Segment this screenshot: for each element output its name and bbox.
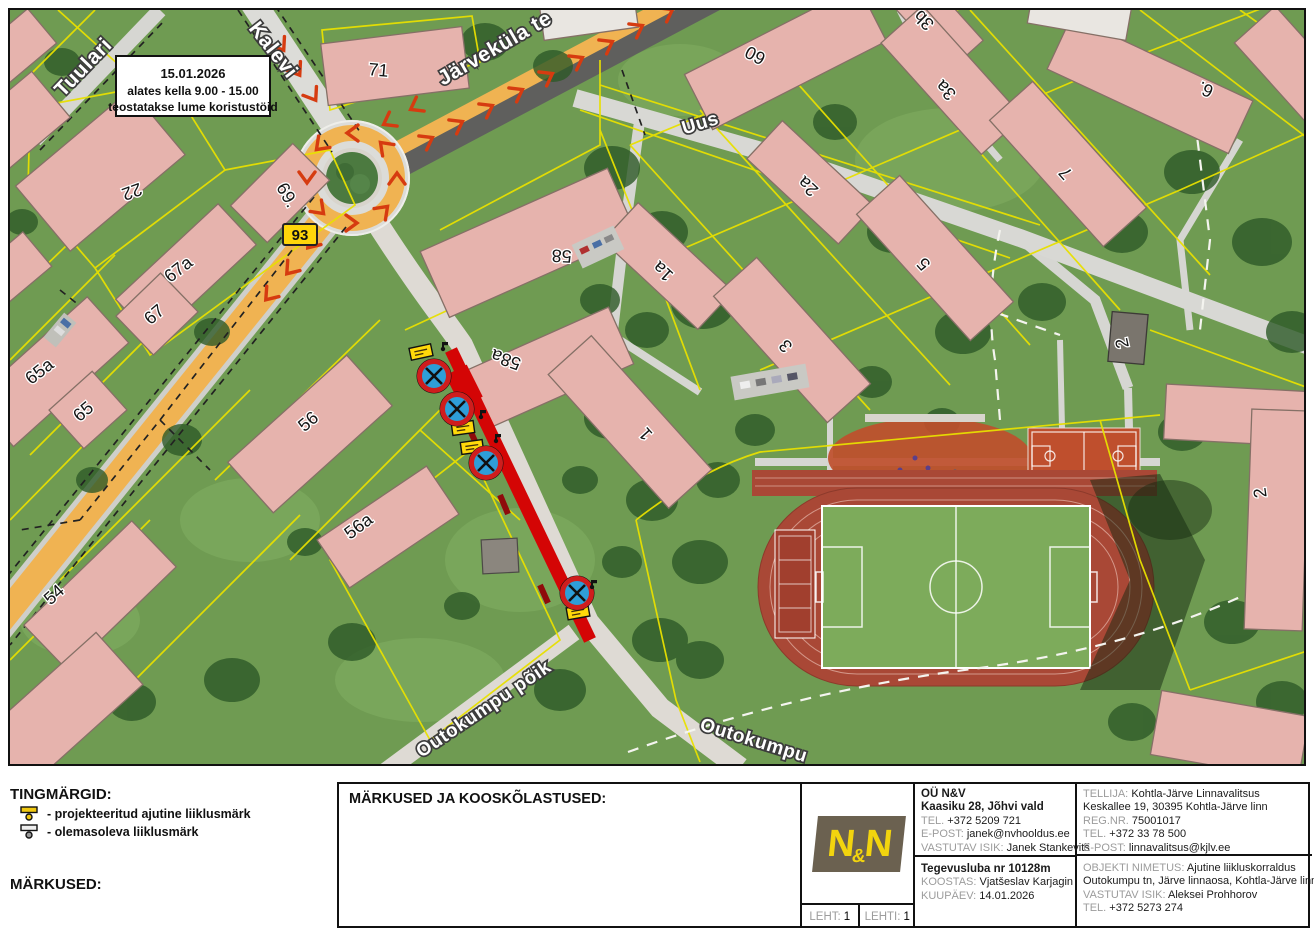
tellija-label: TELLIJA: xyxy=(1083,788,1128,800)
notes-approvals-header: MÄRKUSED JA KOOSKÕLASTUSED: xyxy=(349,791,606,807)
client-responsible-label: VASTUTAV ISIK: xyxy=(1083,889,1166,901)
legend-item-label: - olemasoleva liiklusmärk xyxy=(47,825,198,839)
company-responsible-label: VASTUTAV ISIK: xyxy=(921,842,1004,854)
client-tel-label: TEL. xyxy=(1083,828,1106,840)
company-logo: N & N xyxy=(812,816,906,872)
regnr-value: 75001017 xyxy=(1132,815,1181,827)
object-name: Ajutine liikluskorraldus xyxy=(1187,862,1296,874)
no-stopping-sign-icon xyxy=(469,446,503,480)
notice-text: teostatakse lume koristustöid xyxy=(108,100,277,114)
road-number-badge: 93 xyxy=(283,224,317,245)
title-block-panel: TINGMÄRGID: - projekteeritud ajutine lii… xyxy=(0,770,1314,933)
no-stopping-sign-icon xyxy=(440,392,474,426)
title-block-table: MÄRKUSED JA KOOSKÕLASTUSED: N & N LEHT: … xyxy=(337,782,1310,928)
roadwork-notice-box: 15.01.2026 alates kella 9.00 - 15.00 teo… xyxy=(108,56,277,116)
client-email: linnavalitsus@kjlv.ee xyxy=(1129,842,1230,854)
koostas-label: KOOSTAS: xyxy=(921,876,976,888)
company-cell: OÜ N&V Kaasiku 28, Jõhvi vald TEL. +372 … xyxy=(915,784,1077,926)
company-tel: +372 5209 721 xyxy=(947,815,1021,827)
company-license-block: Tegevusluba nr 10128m KOOSTAS: Vjatšesla… xyxy=(915,859,1075,926)
traffic-plan-page: 71 22 69. 67a 67 65a 65 58 58a 56 56a 54… xyxy=(0,0,1314,933)
sheet-count-cell: LEHTI: 1 xyxy=(860,905,916,928)
client-email-label: E-POST: xyxy=(1083,842,1126,854)
kuupaev-value: 14.01.2026 xyxy=(979,890,1034,902)
client-contact-block: TELLIJA: Kohtla-Järve Linnavalitsus Kesk… xyxy=(1077,784,1312,856)
legend-item-existing: - olemasoleva liiklusmärk xyxy=(20,824,330,839)
notice-time: alates kella 9.00 - 15.00 xyxy=(127,84,259,98)
regnr-label: REG.NR. xyxy=(1083,815,1129,827)
lehti-label: LEHTI: xyxy=(865,911,901,923)
object-label: OBJEKTI NIMETUS: xyxy=(1083,862,1184,874)
kuupaev-label: KUUPÄEV: xyxy=(921,890,976,902)
koostas-value: Vjatšeslav Karjagin xyxy=(979,876,1073,888)
legend-title: TINGMÄRGID: xyxy=(10,786,330,803)
aerial-map: 71 22 69. 67a 67 65a 65 58 58a 56 56a 54… xyxy=(8,8,1306,766)
object-block: OBJEKTI NIMETUS: Ajutine liikluskorraldu… xyxy=(1077,858,1312,926)
no-stopping-sign-icon xyxy=(417,359,451,393)
leht-value: 1 xyxy=(844,911,850,923)
company-address: Kaasiku 28, Jõhvi vald xyxy=(921,801,1069,814)
notice-date: 15.01.2026 xyxy=(160,66,225,81)
no-stopping-sign-icon xyxy=(560,576,594,610)
client-responsible: Aleksei Prohhorov xyxy=(1168,889,1257,901)
client-cell: TELLIJA: Kohtla-Järve Linnavalitsus Kesk… xyxy=(1077,784,1312,926)
sheet-number-cell: LEHT: 1 xyxy=(802,905,860,928)
tellija-value: Kohtla-Järve Linnavalitsus xyxy=(1131,788,1259,800)
company-tel-label: TEL. xyxy=(921,815,944,827)
markused-title: MÄRKUSED: xyxy=(10,876,102,893)
building-number: 71 xyxy=(368,59,390,81)
logo-cell: N & N LEHT: 1 LEHTI: 1 xyxy=(802,784,915,926)
client-tel: +372 33 78 500 xyxy=(1109,828,1186,840)
planned-temporary-sign-icon xyxy=(20,806,40,821)
lehti-value: 1 xyxy=(903,911,909,923)
legend-item-label: - projekteeritud ajutine liiklusmärk xyxy=(47,807,251,821)
logo-letter: N xyxy=(862,825,891,863)
company-email: janek@nvhooldus.ee xyxy=(967,828,1070,840)
client-tel2-label: TEL. xyxy=(1083,902,1106,914)
building-number: 58 xyxy=(551,245,572,266)
existing-sign-icon xyxy=(20,824,40,839)
legend-item-planned: - projekteeritud ajutine liiklusmärk xyxy=(20,806,330,821)
company-license: Tegevusluba nr 10128m xyxy=(921,863,1069,876)
notes-approvals-cell: MÄRKUSED JA KOOSKÕLASTUSED: xyxy=(339,784,802,926)
road-number: 93 xyxy=(292,227,309,244)
company-email-label: E-POST: xyxy=(921,828,964,840)
legend: TINGMÄRGID: - projekteeritud ajutine lii… xyxy=(10,786,330,839)
client-tel2: +372 5273 274 xyxy=(1109,902,1183,914)
company-name: OÜ N&V xyxy=(921,788,1069,801)
object-name-line2: Outokumpu tn, Järve linnaosa, Kohtla-Jär… xyxy=(1083,875,1306,888)
leht-label: LEHT: xyxy=(809,911,840,923)
sheet-row: LEHT: 1 LEHTI: 1 xyxy=(802,903,915,928)
logo-letter: N xyxy=(825,825,854,863)
client-address: Keskallee 19, 30395 Kohtla-Järve linn xyxy=(1083,801,1306,814)
company-contact-block: OÜ N&V Kaasiku 28, Jõhvi vald TEL. +372 … xyxy=(915,784,1075,857)
